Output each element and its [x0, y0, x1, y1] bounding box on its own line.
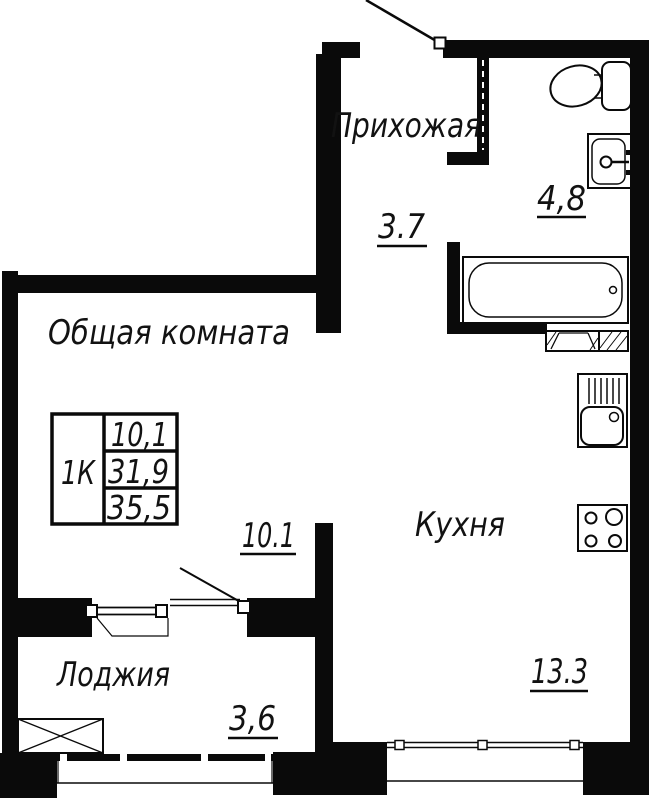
window-frame-left [86, 605, 97, 617]
glazing-mullion-2 [120, 753, 127, 762]
floor-plan: 1К 10,1 31,9 35,5 Прихожая 3.7 4,8 Общая… [0, 0, 649, 800]
living-area-value: 10,1 [111, 415, 168, 454]
balcony-door-leaf [180, 568, 244, 604]
window-sill-outline [97, 618, 168, 636]
living-loggia-window [86, 605, 168, 636]
bathroom-sink-tap-tick-1 [626, 150, 630, 155]
wall-loggia-west-chunk [8, 598, 92, 637]
bathroom-sink [588, 134, 631, 188]
kitchen-window-frame-3 [570, 741, 579, 750]
stove [578, 505, 627, 551]
info-table: 1К 10,1 31,9 35,5 [52, 414, 177, 527]
kitchen-label: Кухня [415, 505, 505, 545]
stove-burner-tr [606, 509, 622, 525]
bathroom-area: 4,8 [537, 179, 586, 219]
loggia-label: Лоджия [55, 655, 170, 695]
balcony-door [170, 568, 250, 613]
kitchen-sink-drain [610, 413, 619, 422]
wall-bottom-center-b [333, 742, 387, 795]
floor-plan-drawing: 1К 10,1 31,9 35,5 Прихожая 3.7 4,8 Общая… [0, 0, 649, 800]
hallway-label: Прихожая [331, 106, 481, 146]
balcony-door-hinge [238, 601, 250, 613]
unit-type-label: 1К [61, 453, 96, 492]
wall-bath-west-stub [447, 152, 489, 165]
living-room-area: 10.1 [242, 516, 295, 556]
kitchen-window-frame-1 [395, 741, 404, 750]
kitchen-area: 13.3 [531, 652, 588, 692]
stove-burner-bl [586, 536, 597, 547]
toilet-tank [602, 62, 631, 110]
kitchen-sink [578, 374, 627, 447]
hallway-area: 3.7 [378, 207, 425, 247]
entrance-door [366, 0, 446, 49]
wall-living-top [2, 275, 341, 293]
entrance-door-hinge [435, 38, 446, 49]
glazing-mullion-4 [265, 753, 271, 762]
wall-bottom-center-a [273, 752, 335, 795]
stove-burner-br [609, 535, 621, 547]
entrance-door-leaf [366, 0, 438, 42]
wall-loggia-sw-corner [0, 753, 57, 798]
living-room-label: Общая комната [48, 313, 290, 353]
wall-right-outer [630, 40, 649, 795]
total-area-value: 31,9 [108, 452, 169, 491]
wall-left-outer [2, 271, 18, 798]
wall-central-lower [315, 523, 333, 755]
wall-central-upper [316, 54, 341, 333]
toilet-bowl [545, 60, 606, 113]
loggia-glazing [57, 753, 273, 783]
vent-shaft [546, 331, 628, 351]
toilet [545, 60, 631, 113]
overall-area-value: 35,5 [107, 488, 171, 527]
bathroom-sink-faucet [601, 157, 612, 168]
glazing-mullion-1 [60, 753, 67, 762]
loggia-glazing-band [57, 754, 273, 761]
bathroom-sink-tap-tick-2 [626, 170, 630, 175]
wall-entry-top [443, 40, 649, 58]
bathtub-inner [469, 263, 622, 317]
glazing-mullion-3 [201, 753, 208, 762]
bathtub [463, 257, 628, 323]
kitchen-window-frame-2 [478, 741, 487, 750]
loggia-area: 3,6 [229, 699, 276, 739]
wall-bath-west-lower [447, 242, 460, 334]
stove-burner-tl [586, 513, 597, 524]
kitchen-window [387, 741, 583, 782]
wall-balcony-door-side [247, 598, 315, 637]
wall-kitchen-se-corner [583, 742, 649, 795]
window-frame-right [156, 605, 167, 617]
storage-box [18, 719, 103, 753]
